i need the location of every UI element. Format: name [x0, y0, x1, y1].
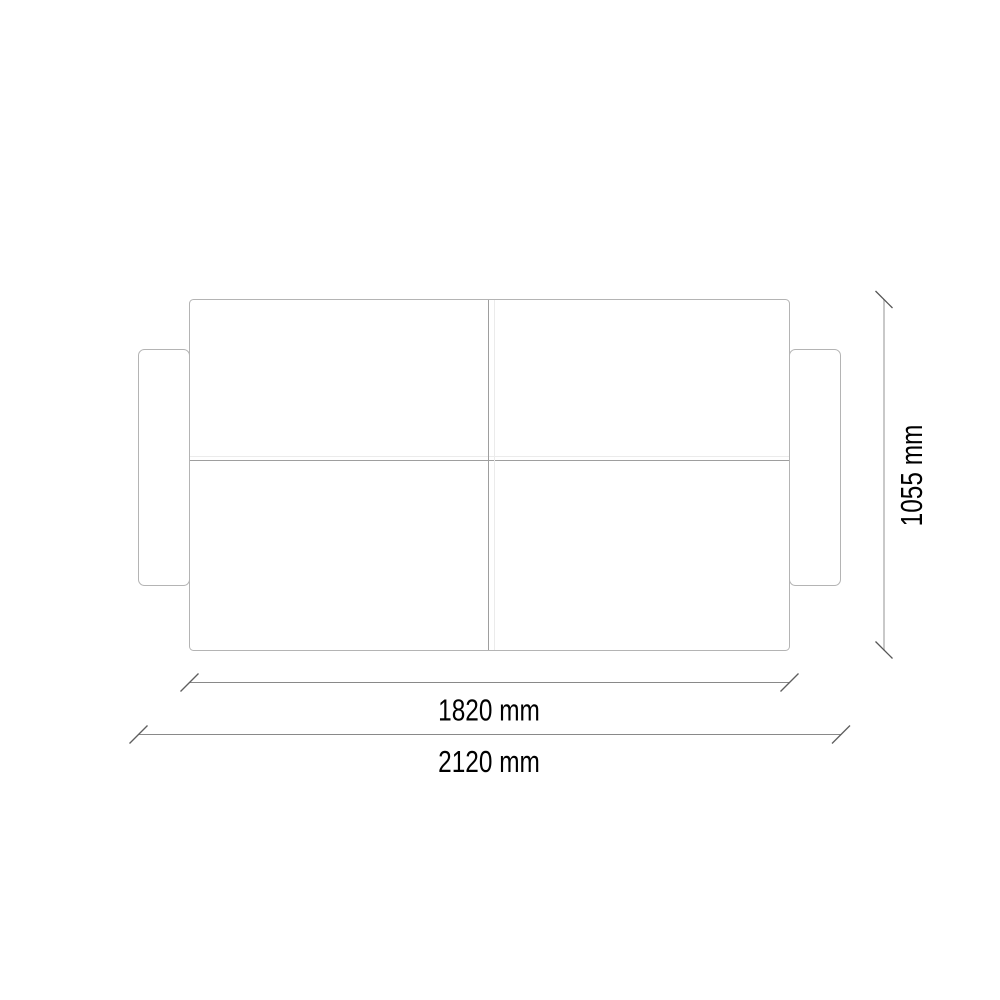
svg-text:1055 mm: 1055 mm — [894, 425, 928, 527]
svg-text:1820 mm: 1820 mm — [438, 693, 540, 727]
svg-text:2120 mm: 2120 mm — [438, 744, 540, 778]
